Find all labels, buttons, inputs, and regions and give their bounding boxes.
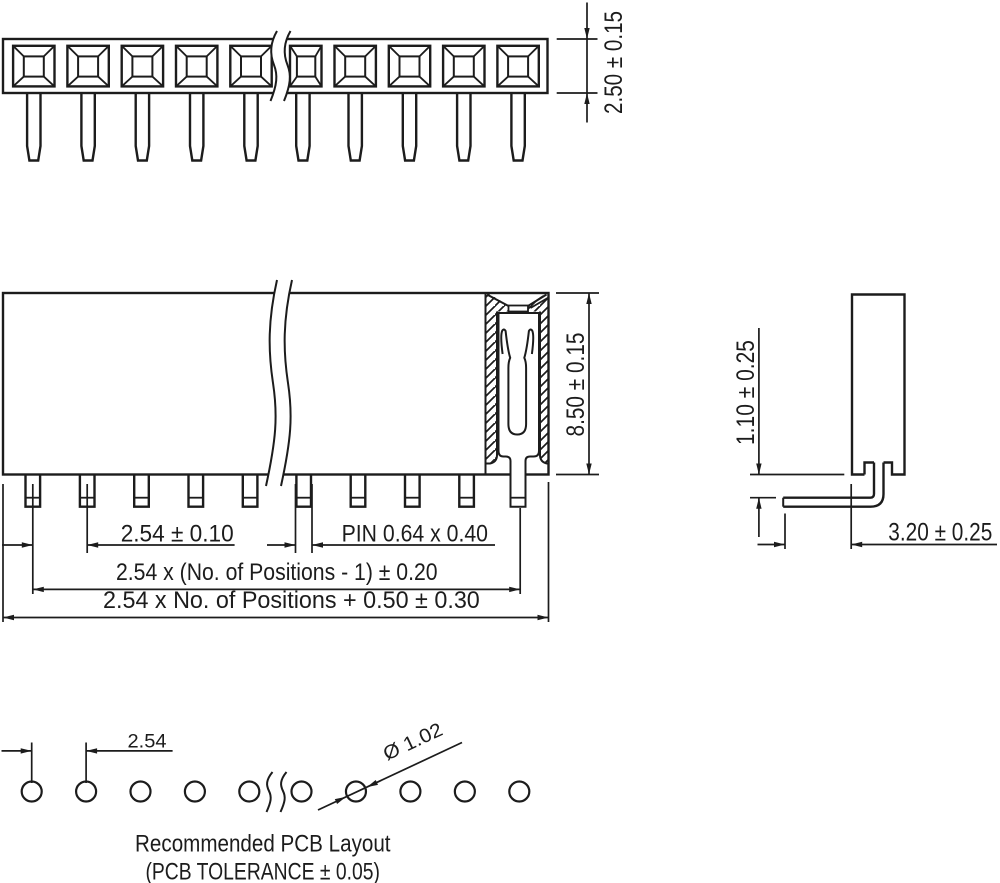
svg-text:8.50 ± 0.15: 8.50 ± 0.15 [562, 333, 590, 437]
svg-text:Recommended PCB Layout: Recommended PCB Layout [135, 831, 391, 858]
svg-text:2.54: 2.54 [128, 731, 167, 753]
svg-text:2.54 x (No. of Positions - 1): 2.54 x (No. of Positions - 1) ± 0.20 [116, 559, 438, 586]
svg-text:2.50 ± 0.15: 2.50 ± 0.15 [600, 11, 628, 114]
svg-text:1.10 ± 0.25: 1.10 ± 0.25 [732, 340, 760, 445]
svg-text:2.54 ± 0.10: 2.54 ± 0.10 [121, 520, 234, 547]
svg-text:PIN 0.64 x 0.40: PIN 0.64 x 0.40 [342, 520, 488, 547]
svg-text:(PCB TOLERANCE ± 0.05): (PCB TOLERANCE ± 0.05) [145, 859, 380, 883]
svg-text:2.54 x No. of Positions + 0.50: 2.54 x No. of Positions + 0.50 ± 0.30 [103, 587, 480, 614]
svg-text:3.20 ± 0.25: 3.20 ± 0.25 [888, 519, 992, 547]
